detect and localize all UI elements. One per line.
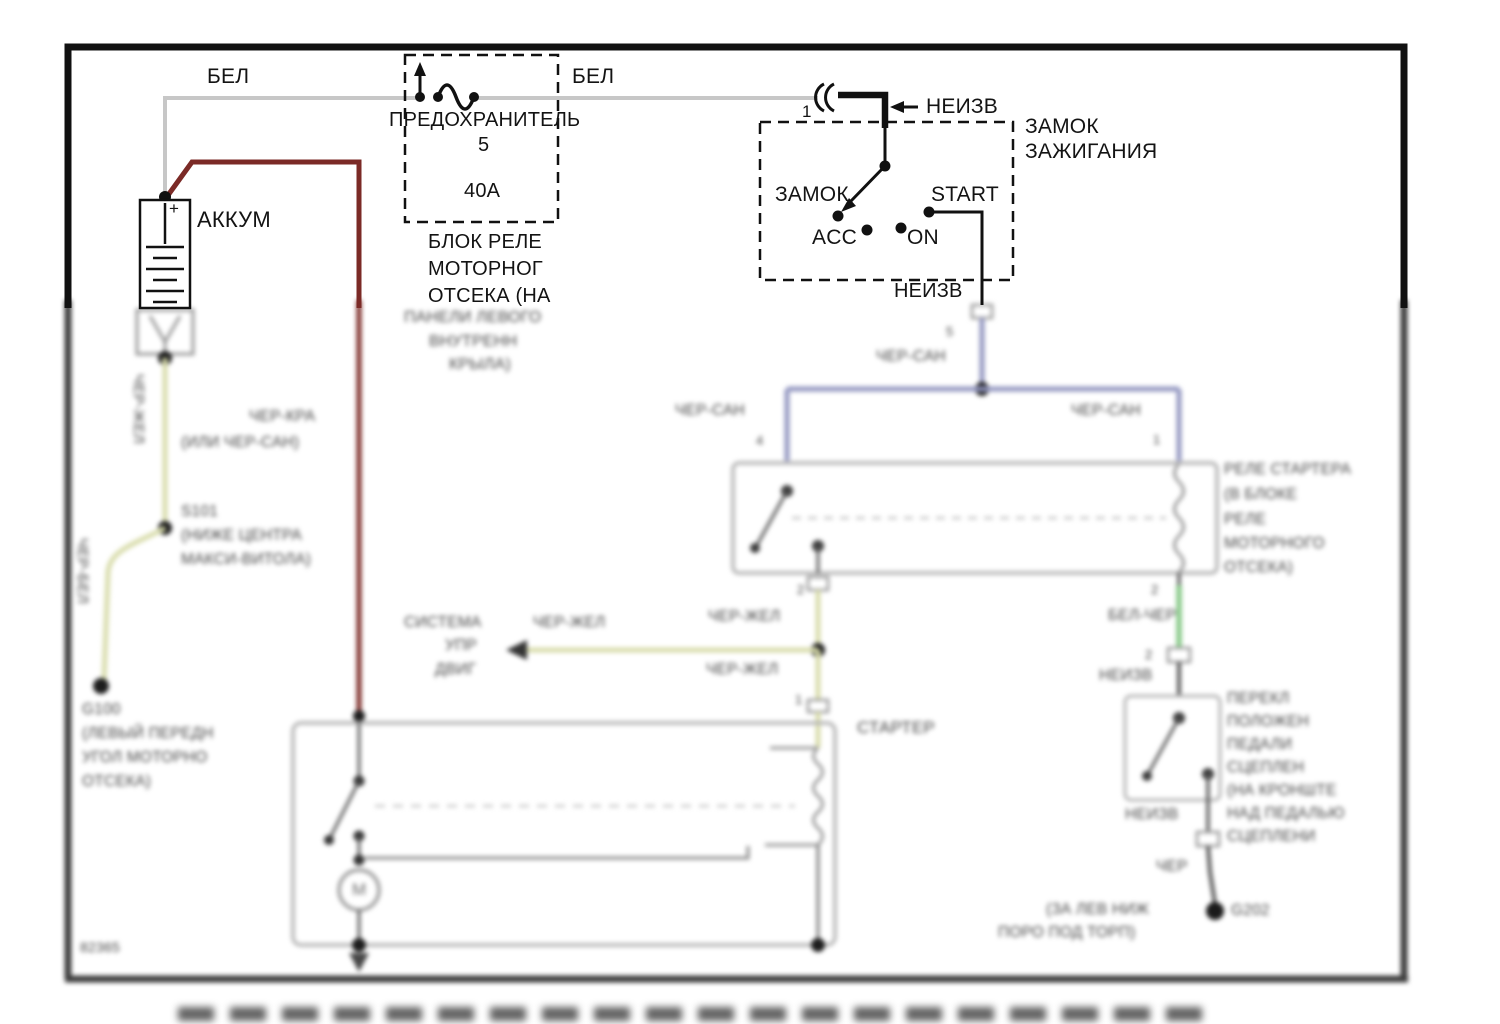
position-start: START [931, 184, 999, 206]
wiring-diagram-page: ПАНЕЛИ ЛЕВОГОВНУТРЕННКРЫЛА)5ЧЕР-САНЧЕР-С… [0, 0, 1500, 1024]
ignition-connector-pin: 1 [802, 103, 812, 121]
wire-label-bel-left: БЕЛ [207, 66, 249, 88]
battery-label: АККУМ [197, 208, 271, 231]
ignition-title-line2: ЗАЖИГАНИЯ [1025, 141, 1157, 163]
fuse-block-name-line3: ОТСЕКА (НА [428, 286, 551, 307]
battery-plus: + [169, 200, 179, 218]
ignition-output-neizv: НЕИЗВ [894, 281, 963, 302]
fuse-title: ПРЕДОХРАНИТЕЛЬ [389, 110, 580, 131]
sharp-labels: БЕЛБЕЛПРЕДОХРАНИТЕЛЬ540АБЛОК РЕЛЕМОТОРНО… [0, 0, 1500, 1024]
position-lock: ЗАМОК [775, 184, 849, 206]
fuse-block-name-line1: БЛОК РЕЛЕ [428, 232, 542, 253]
wire-label-bel-right: БЕЛ [572, 66, 614, 88]
ignition-title-line1: ЗАМОК [1025, 116, 1099, 138]
position-acc: ACC [812, 227, 857, 249]
position-on: ON [907, 227, 939, 249]
fuse-number: 5 [478, 135, 489, 156]
fuse-rating: 40А [464, 181, 500, 202]
fuse-block-name-line2: МОТОРНОГ [428, 259, 543, 280]
feed-label-neizv: НЕИЗВ [926, 96, 998, 118]
